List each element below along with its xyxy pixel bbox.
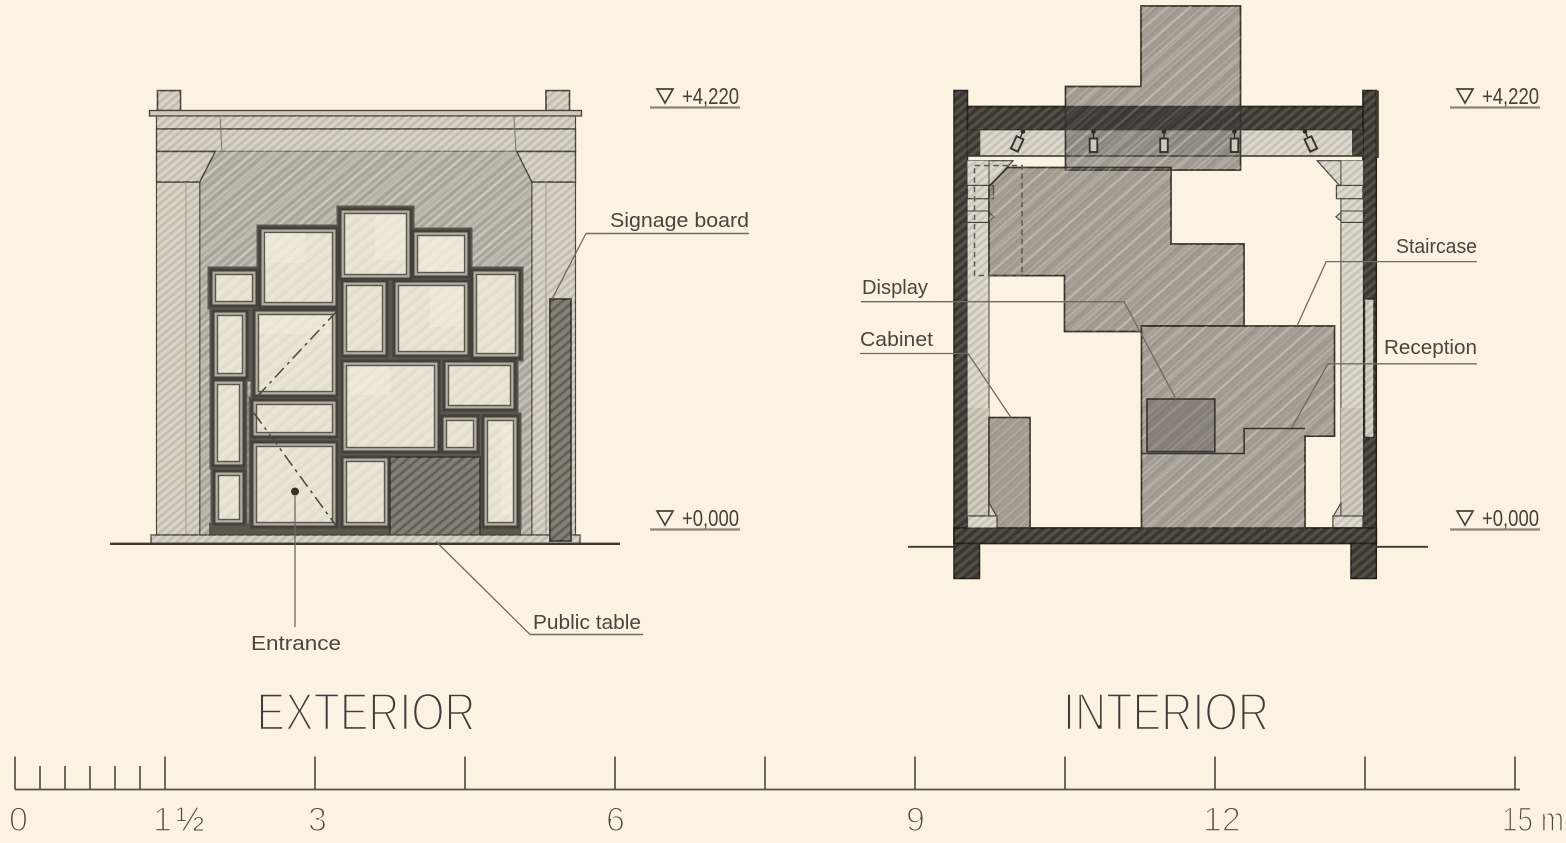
svg-text:6: 6 — [606, 801, 625, 839]
svg-text:1: 1 — [153, 801, 172, 839]
svg-text:INTERIOR: INTERIOR — [1063, 683, 1269, 742]
svg-text:Entrance: Entrance — [251, 632, 341, 655]
svg-text:3: 3 — [308, 801, 327, 839]
svg-text:Cabinet: Cabinet — [860, 328, 933, 351]
svg-text:+4,220: +4,220 — [682, 83, 739, 109]
svg-text:Staircase: Staircase — [1396, 235, 1477, 258]
svg-text:+4,220: +4,220 — [1482, 83, 1539, 109]
svg-text:12: 12 — [1203, 801, 1241, 839]
svg-text:+0,000: +0,000 — [682, 505, 739, 531]
svg-text:EXTERIOR: EXTERIOR — [257, 683, 476, 742]
svg-text:Public table: Public table — [533, 611, 641, 634]
svg-text:Display: Display — [862, 276, 929, 299]
svg-text:Signage board: Signage board — [610, 209, 749, 232]
svg-text:Reception: Reception — [1384, 336, 1477, 359]
svg-text:0: 0 — [9, 801, 28, 839]
svg-text:9: 9 — [906, 801, 925, 839]
svg-text:½: ½ — [176, 801, 204, 839]
svg-text:15 m: 15 m — [1502, 801, 1564, 839]
svg-text:+0,000: +0,000 — [1482, 505, 1539, 531]
